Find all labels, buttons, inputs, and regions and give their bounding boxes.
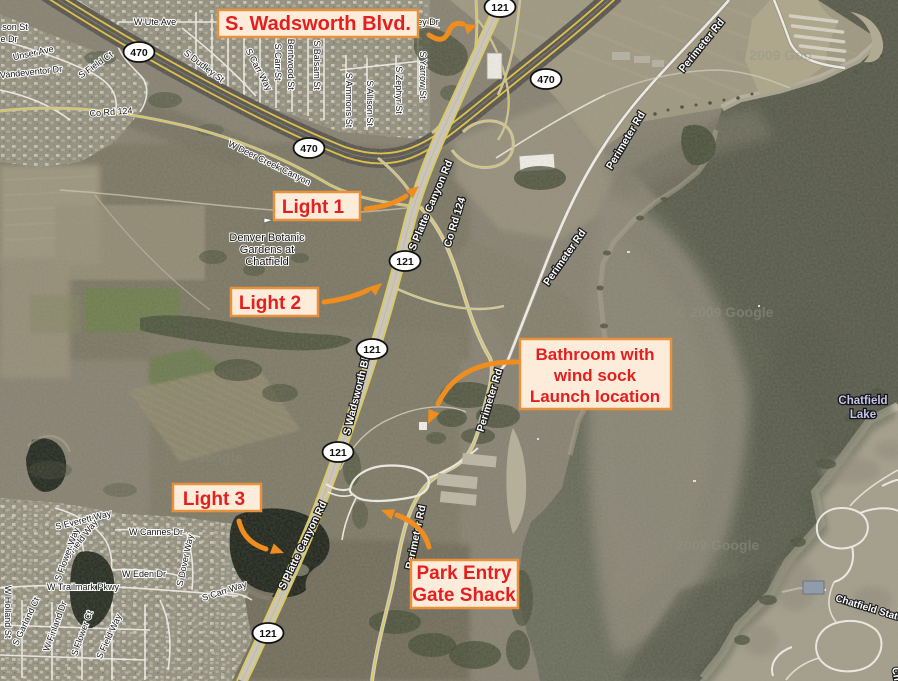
svg-text:S. Wadsworth Blvd.: S. Wadsworth Blvd. [225, 13, 411, 35]
svg-text:W Ute Ave: W Ute Ave [134, 17, 176, 27]
svg-text:2009 Google: 2009 Google [676, 537, 759, 553]
svg-text:Bathroom with: Bathroom with [536, 345, 655, 364]
svg-text:S Yarrow St: S Yarrow St [418, 51, 428, 99]
svg-text:121: 121 [259, 628, 277, 640]
svg-text:son St: son St [2, 22, 28, 32]
svg-text:121: 121 [491, 2, 509, 14]
svg-text:Light 1: Light 1 [282, 197, 345, 218]
svg-text:© 2009 Goo: © 2009 Goo [735, 47, 812, 63]
svg-text:121: 121 [329, 447, 347, 459]
svg-text:Chatfield: Chatfield [245, 256, 288, 268]
svg-text:S Bentwood St: S Bentwood St [286, 30, 296, 90]
svg-text:W Trailmark Pkwy: W Trailmark Pkwy [47, 582, 120, 592]
svg-text:121: 121 [363, 344, 381, 356]
svg-text:470: 470 [300, 143, 318, 155]
svg-text:e Dr: e Dr [0, 34, 17, 44]
svg-text:Light 2: Light 2 [239, 293, 301, 314]
svg-text:© Google: © Google [180, 449, 243, 465]
svg-text:Gardens at: Gardens at [240, 244, 294, 256]
svg-text:Park Entry: Park Entry [416, 563, 511, 584]
svg-text:S Ammons St: S Ammons St [344, 73, 354, 128]
svg-text:W Cannes Dr: W Cannes Dr [129, 527, 183, 537]
svg-text:wind sock: wind sock [553, 366, 637, 385]
svg-text:Light 3: Light 3 [183, 489, 245, 510]
svg-text:Chatfield: Chatfield [838, 395, 887, 407]
svg-text:Gate Shack: Gate Shack [412, 585, 516, 606]
svg-text:S Carr St: S Carr St [273, 43, 283, 81]
svg-text:470: 470 [537, 74, 555, 86]
svg-text:W Eden Dr: W Eden Dr [122, 569, 166, 579]
svg-text:S Allison St: S Allison St [365, 80, 375, 126]
svg-text:470: 470 [130, 47, 148, 59]
svg-text:ey Dr: ey Dr [417, 17, 439, 27]
svg-text:S Balsam St: S Balsam St [312, 40, 322, 90]
svg-text:Launch location: Launch location [530, 387, 660, 406]
svg-text:Lake: Lake [850, 409, 876, 421]
svg-text:Denver Botanic: Denver Botanic [229, 232, 305, 244]
svg-text:S Zephyr St: S Zephyr St [394, 66, 404, 114]
svg-text:© 2009 Google: © 2009 Google [676, 304, 774, 320]
svg-text:121: 121 [396, 256, 414, 268]
svg-text:W Holland St: W Holland St [3, 586, 13, 639]
